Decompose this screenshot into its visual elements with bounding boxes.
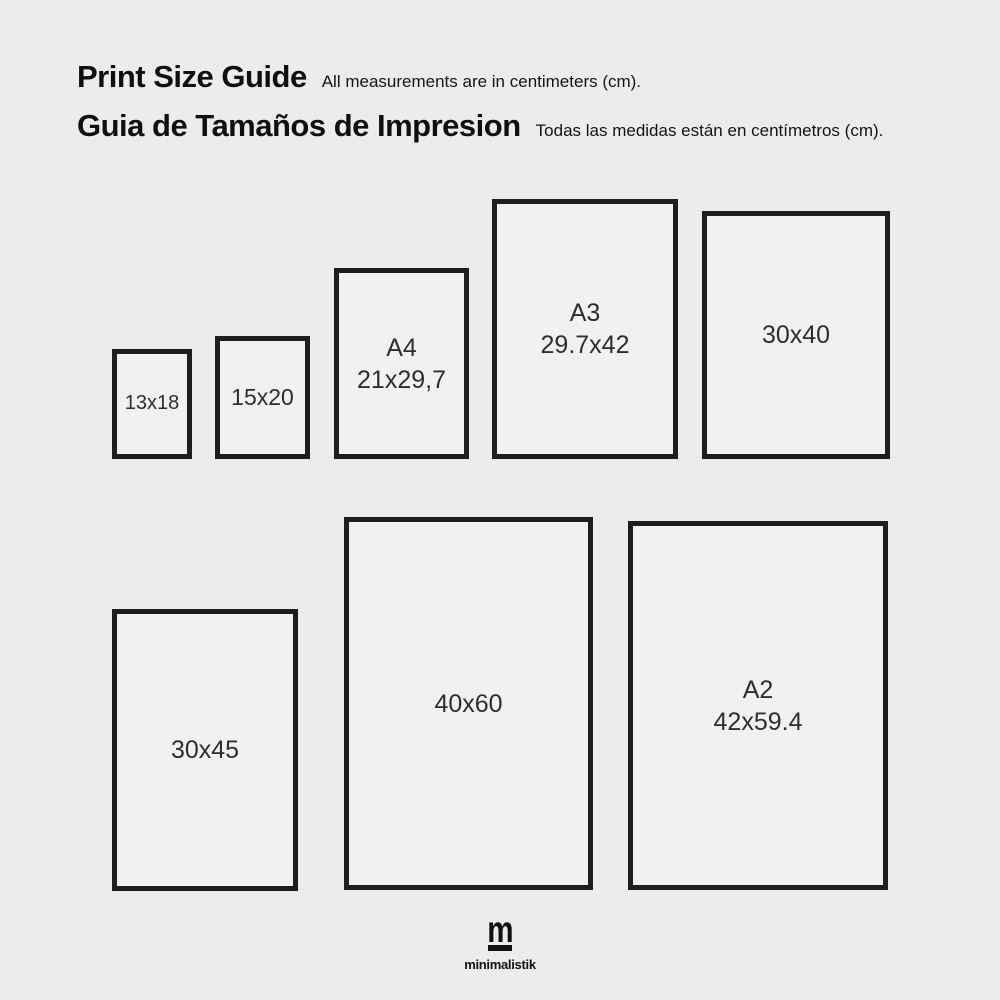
brand-logo: m minimalistik <box>0 918 1000 972</box>
logo-wordmark: minimalistik <box>464 957 536 972</box>
size-dimensions: 13x18 <box>125 391 180 417</box>
page-subtitle-spanish: Todas las medidas están en centímetros (… <box>536 121 884 141</box>
size-dimensions: 42x59.4 <box>714 706 803 738</box>
page-title-english: Print Size Guide <box>77 59 307 95</box>
print-size-box-13x18: 13x18 <box>112 349 192 459</box>
header-line-spanish: Guia de Tamaños de Impresion Todas las m… <box>77 108 883 144</box>
print-size-box-40x60: 40x60 <box>344 517 593 890</box>
size-label: 13x18 <box>125 391 180 417</box>
page-subtitle-english: All measurements are in centimeters (cm)… <box>322 72 641 92</box>
print-size-guide-poster: Print Size Guide All measurements are in… <box>0 0 1000 1000</box>
size-label: A2 42x59.4 <box>714 674 803 738</box>
size-dimensions: 29.7x42 <box>541 329 630 361</box>
size-dimensions: 30x40 <box>762 319 830 351</box>
size-dimensions: 15x20 <box>231 383 294 412</box>
size-label: 15x20 <box>231 383 294 412</box>
size-dimensions: 30x45 <box>171 734 239 766</box>
size-label: A4 21x29,7 <box>357 332 446 396</box>
print-size-box-30x45: 30x45 <box>112 609 298 891</box>
print-size-box-a4: A4 21x29,7 <box>334 268 469 459</box>
size-label: 40x60 <box>434 688 502 720</box>
size-name: A3 <box>541 297 630 329</box>
header-line-english: Print Size Guide All measurements are in… <box>77 59 641 95</box>
size-label: 30x45 <box>171 734 239 766</box>
size-dimensions: 21x29,7 <box>357 364 446 396</box>
print-size-box-15x20: 15x20 <box>215 336 310 459</box>
size-label: A3 29.7x42 <box>541 297 630 361</box>
print-size-box-a2: A2 42x59.4 <box>628 521 888 890</box>
size-name: A4 <box>357 332 446 364</box>
size-name: A2 <box>714 674 803 706</box>
logo-m-icon: m <box>487 918 513 942</box>
size-label: 30x40 <box>762 319 830 351</box>
size-dimensions: 40x60 <box>434 688 502 720</box>
print-size-box-a3: A3 29.7x42 <box>492 199 678 459</box>
page-title-spanish: Guia de Tamaños de Impresion <box>77 108 521 144</box>
print-size-box-30x40: 30x40 <box>702 211 890 459</box>
